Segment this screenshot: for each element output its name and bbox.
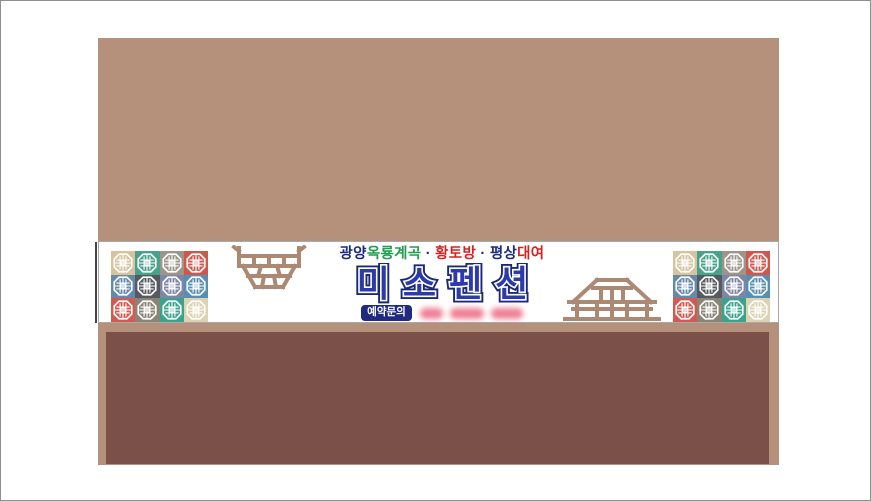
lattice-window-icon: [162, 276, 182, 296]
lattice-window-icon: [137, 253, 157, 273]
lattice-tile: [673, 298, 697, 322]
lattice-tile: [160, 298, 184, 322]
phone-redacted-blob: [420, 308, 443, 319]
lattice-window-icon: [186, 253, 206, 273]
lattice-tile: [111, 275, 135, 299]
lattice-tile: [135, 298, 159, 322]
tagline: 광양옥룡계곡 · 황토방 · 평상대여: [337, 246, 547, 263]
tagline-segment: ·: [421, 246, 435, 262]
wooden-platform-icon: [563, 276, 661, 322]
lattice-window-icon: [162, 300, 182, 320]
lattice-tile-grid-right: [673, 251, 770, 322]
pavilion-railing-icon: [231, 245, 307, 291]
lattice-window-icon: [675, 276, 695, 296]
phone-number-redacted: [420, 308, 523, 319]
lattice-tile: [722, 298, 746, 322]
lattice-window-icon: [162, 253, 182, 273]
reservation-badge: 예약문의: [361, 305, 412, 321]
lattice-tile: [746, 251, 770, 275]
contact-row: 예약문의: [337, 305, 547, 321]
lattice-tile: [184, 251, 208, 275]
banner-left-edge-mark: [95, 242, 97, 323]
lattice-tile: [697, 275, 721, 299]
lattice-window-icon: [113, 276, 133, 296]
phone-redacted-blob: [491, 308, 523, 319]
lattice-tile: [184, 275, 208, 299]
lattice-tile: [135, 275, 159, 299]
pension-signboard: 광양옥룡계곡 · 황토방 · 평상대여 미소펜션 미소펜션 예약문의: [98, 241, 779, 323]
lattice-window-icon: [748, 300, 768, 320]
tagline-segment: 옥룡계곡: [367, 246, 422, 262]
lattice-tile: [160, 275, 184, 299]
lattice-window-icon: [724, 300, 744, 320]
tagline-segment: 평상: [490, 246, 517, 262]
lattice-tile-grid-left: [111, 251, 208, 322]
lattice-window-icon: [113, 253, 133, 273]
lattice-tile: [135, 251, 159, 275]
pension-title-text: 미소펜션: [357, 263, 541, 304]
lattice-tile: [722, 275, 746, 299]
lattice-tile: [722, 251, 746, 275]
lattice-window-icon: [699, 300, 719, 320]
tagline-segment: ·: [476, 246, 490, 262]
lattice-window-icon: [748, 276, 768, 296]
lattice-window-icon: [699, 276, 719, 296]
lattice-tile: [746, 275, 770, 299]
lattice-window-icon: [186, 276, 206, 296]
tagline-segment: 대여: [517, 246, 544, 262]
lattice-tile: [160, 251, 184, 275]
lattice-tile: [184, 298, 208, 322]
phone-redacted-blob: [450, 308, 484, 319]
lattice-window-icon: [186, 300, 206, 320]
lattice-tile: [673, 275, 697, 299]
lattice-window-icon: [675, 253, 695, 273]
signboard-text: 광양옥룡계곡 · 황토방 · 평상대여 미소펜션 미소펜션 예약문의: [337, 246, 547, 321]
lattice-window-icon: [675, 300, 695, 320]
tagline-segment: 광양: [340, 246, 367, 262]
lattice-tile: [746, 298, 770, 322]
lattice-tile: [697, 251, 721, 275]
lattice-window-icon: [748, 253, 768, 273]
design-canvas: 광양옥룡계곡 · 황토방 · 평상대여 미소펜션 미소펜션 예약문의: [0, 0, 871, 501]
lattice-window-icon: [724, 253, 744, 273]
lattice-tile: [697, 298, 721, 322]
tagline-segment: 황토방: [435, 246, 476, 262]
lattice-tile: [111, 298, 135, 322]
lattice-tile: [673, 251, 697, 275]
lattice-window-icon: [137, 276, 157, 296]
lattice-window-icon: [699, 253, 719, 273]
lattice-tile: [111, 251, 135, 275]
lower-wall: [106, 332, 769, 464]
lattice-window-icon: [113, 300, 133, 320]
lattice-window-icon: [724, 276, 744, 296]
lattice-window-icon: [137, 300, 157, 320]
pension-title: 미소펜션 미소펜션: [337, 263, 547, 305]
